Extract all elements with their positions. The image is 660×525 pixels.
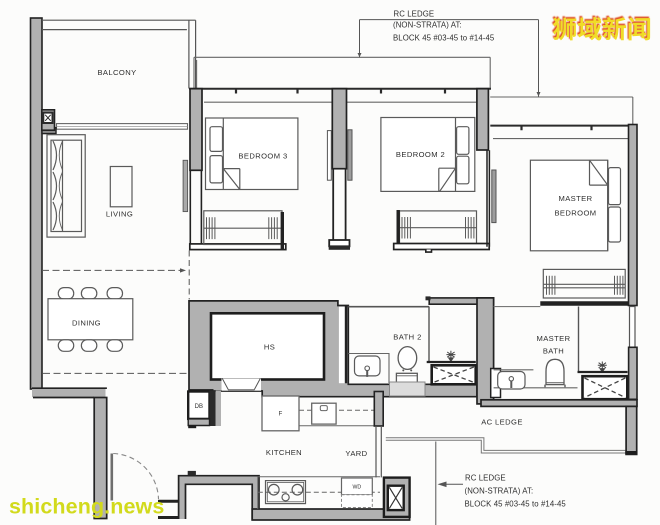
svg-text:(NON-STRATA) AT:: (NON-STRATA) AT: xyxy=(393,20,462,29)
svg-text:BEDROOM: BEDROOM xyxy=(554,209,596,218)
svg-text:BLOCK 45 #03-45 to #14-45: BLOCK 45 #03-45 to #14-45 xyxy=(393,33,495,42)
svg-text:WD: WD xyxy=(352,485,361,491)
svg-text:BLOCK 45 #03-45 to #14-45: BLOCK 45 #03-45 to #14-45 xyxy=(465,500,567,509)
svg-text:RC LEDGE: RC LEDGE xyxy=(394,9,435,18)
svg-text:RC LEDGE: RC LEDGE xyxy=(465,474,506,483)
svg-text:F: F xyxy=(279,412,283,418)
svg-text:DB: DB xyxy=(195,404,203,410)
svg-text:YARD: YARD xyxy=(345,449,367,458)
svg-text:BALCONY: BALCONY xyxy=(97,68,136,77)
svg-text:BATH 2: BATH 2 xyxy=(393,333,421,342)
svg-text:BEDROOM 2: BEDROOM 2 xyxy=(396,150,445,159)
svg-text:MASTER: MASTER xyxy=(536,334,570,343)
svg-text:shicheng.news: shicheng.news xyxy=(9,495,164,519)
svg-text:(NON-STRATA) AT:: (NON-STRATA) AT: xyxy=(465,487,534,496)
svg-text:BATH: BATH xyxy=(543,347,564,356)
svg-text:LIVING: LIVING xyxy=(106,210,133,219)
svg-text:HS: HS xyxy=(264,343,275,352)
svg-text:AC LEDGE: AC LEDGE xyxy=(481,418,523,427)
svg-text:KITCHEN: KITCHEN xyxy=(266,448,302,457)
svg-text:MASTER: MASTER xyxy=(558,194,592,203)
svg-text:BEDROOM 3: BEDROOM 3 xyxy=(238,152,287,161)
svg-text:DINING: DINING xyxy=(72,319,101,328)
